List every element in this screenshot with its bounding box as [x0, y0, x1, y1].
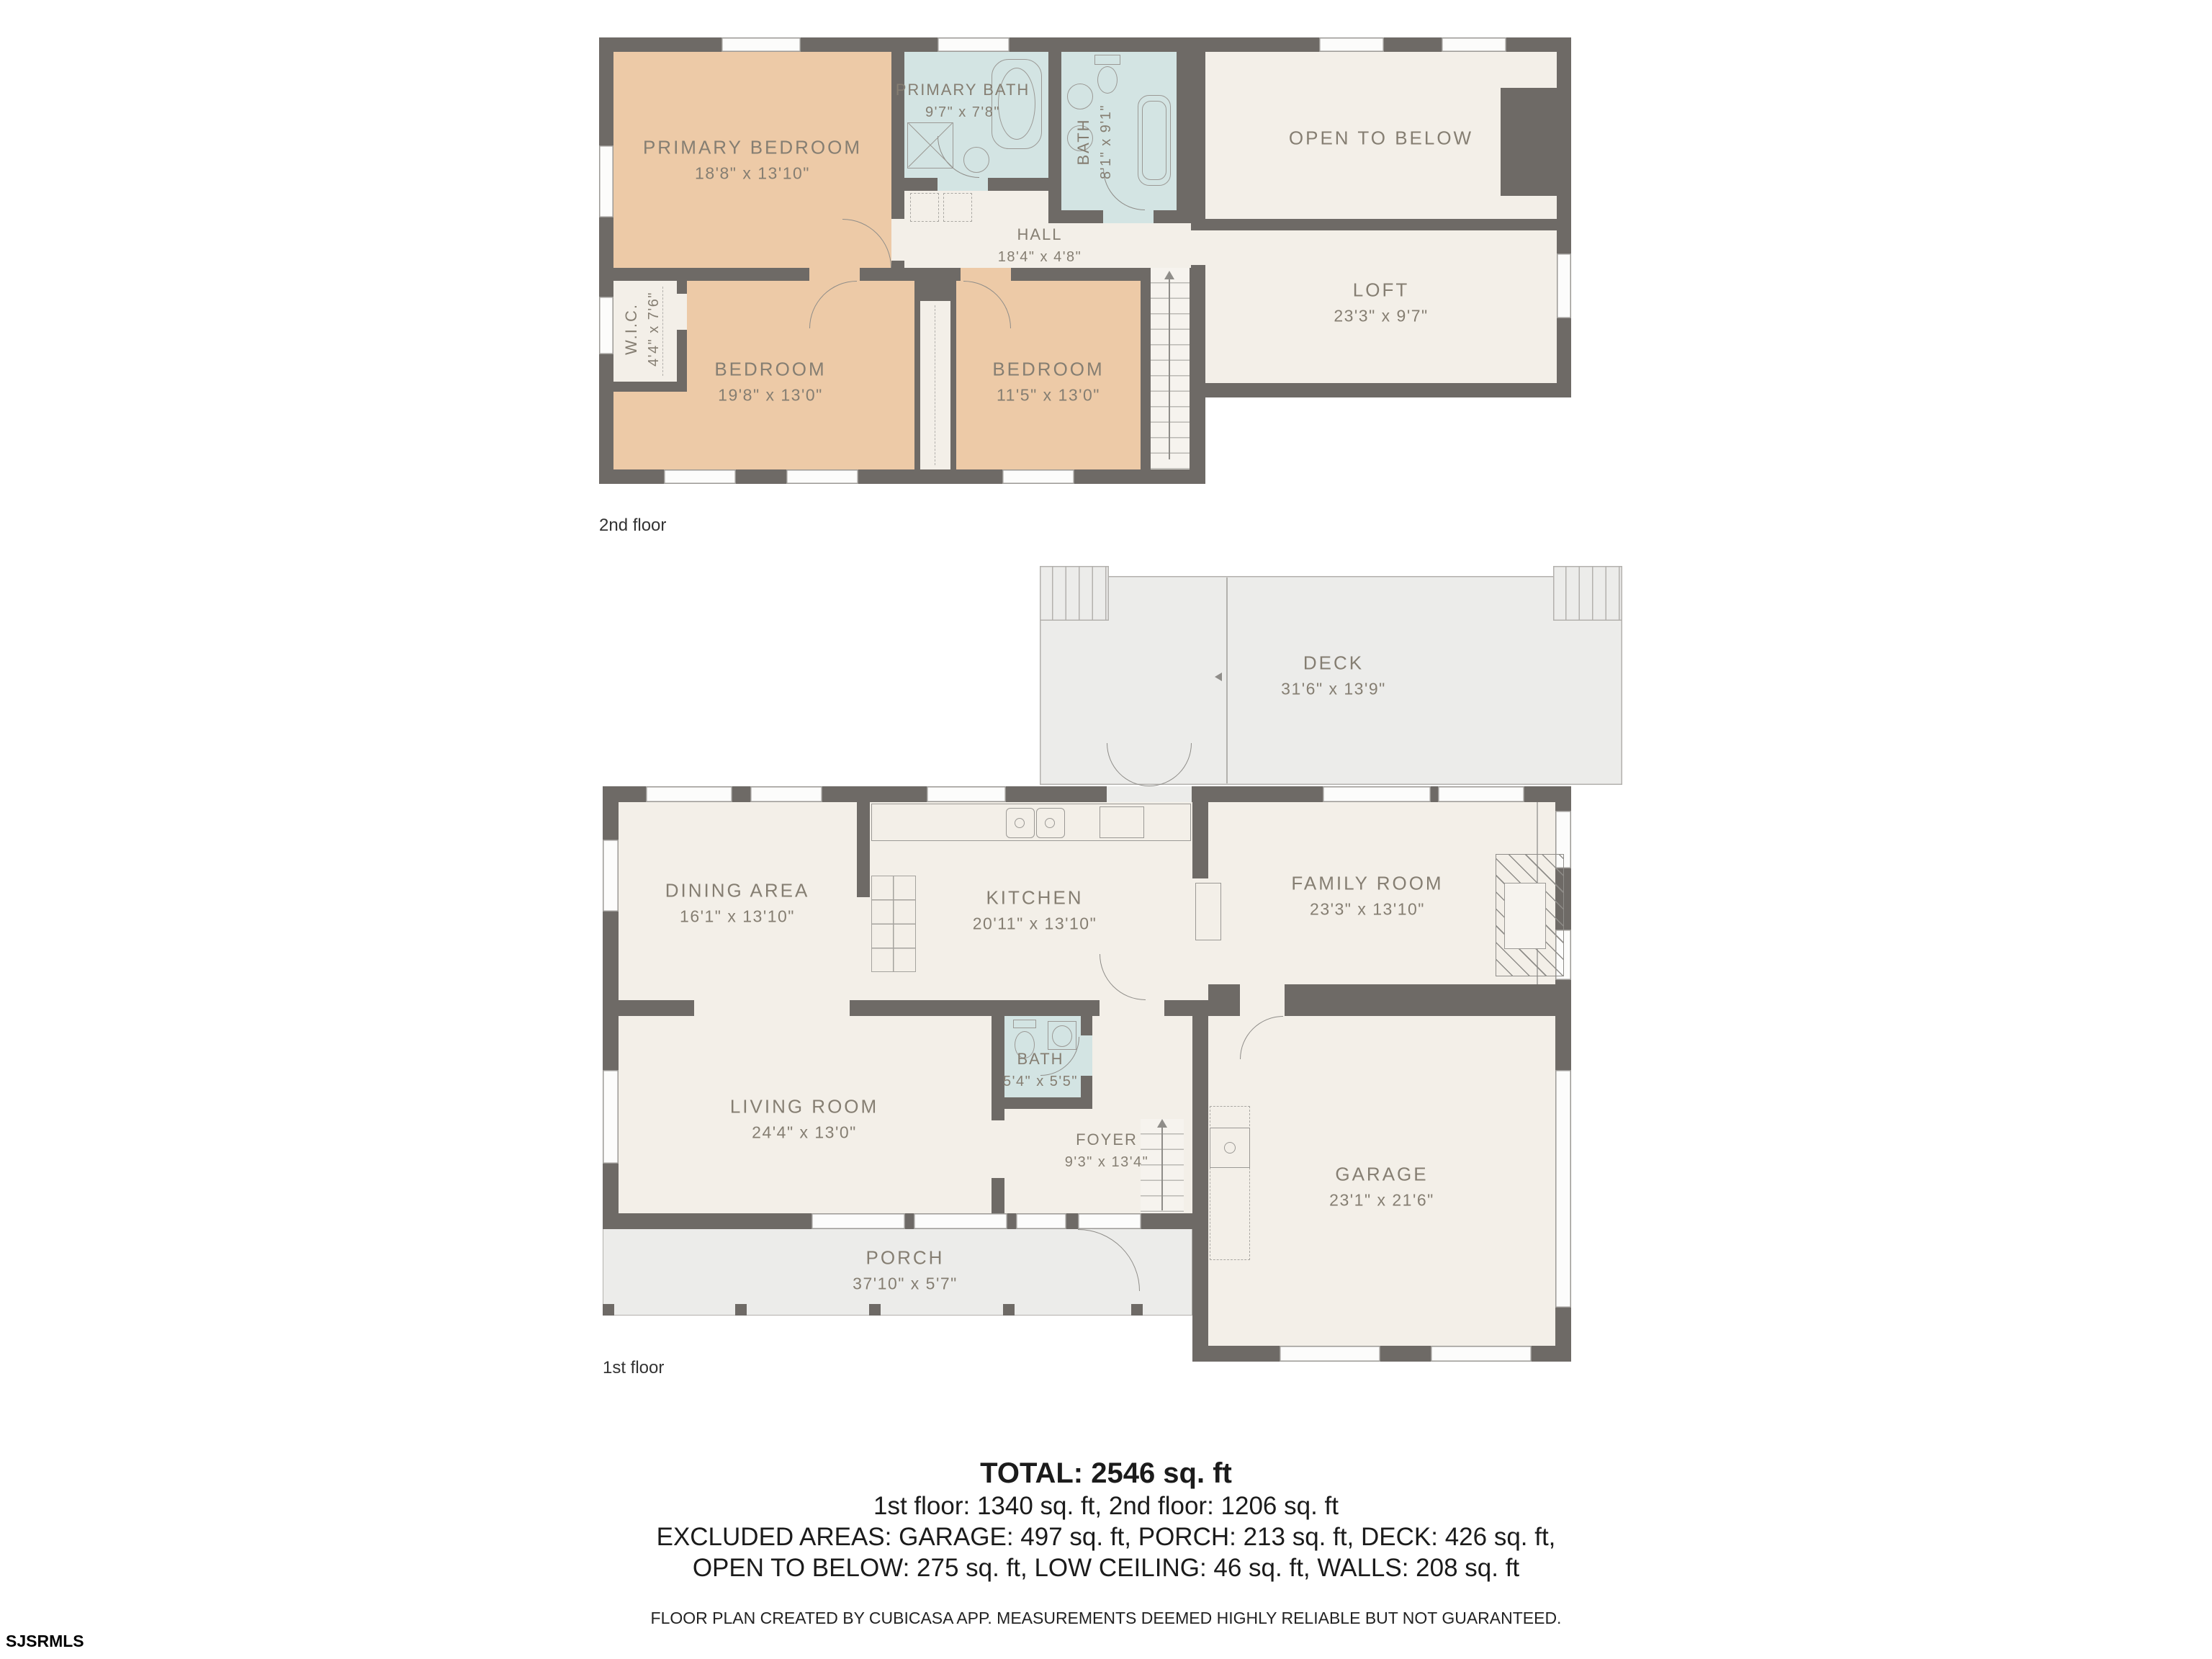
- closet-divider-line: [935, 305, 935, 465]
- stairs-up-arrow: [1164, 271, 1174, 279]
- stove: [1100, 806, 1144, 838]
- room-label-wic: W.I.C. 4'4" x 7'6": [622, 292, 662, 367]
- wall-opening: [992, 1120, 1004, 1178]
- window: [646, 786, 732, 802]
- excluded-areas-1: EXCLUDED AREAS: GARAGE: 497 sq. ft, PORC…: [0, 1521, 2212, 1552]
- door-opening: [1100, 1000, 1164, 1016]
- window: [1016, 1213, 1066, 1229]
- wall: [613, 382, 687, 392]
- window: [1557, 253, 1571, 318]
- window: [721, 37, 801, 52]
- window: [1002, 469, 1074, 484]
- room-label-loft: LOFT 23'3" x 9'7": [1334, 279, 1428, 326]
- door-opening: [1078, 1213, 1141, 1229]
- closet: [920, 301, 950, 469]
- second-floor-plan: PRIMARY BEDROOM 18'8" x 13'10" PRIMARY B…: [599, 37, 1571, 484]
- toilet-tank: [1013, 1020, 1036, 1028]
- room-foyer: [1092, 1016, 1192, 1109]
- porch-post: [1131, 1304, 1143, 1316]
- cabinet: [1195, 883, 1221, 940]
- garage-door-window: [1280, 1346, 1380, 1362]
- door-opening: [677, 294, 687, 330]
- room-label-bedroom-2: BEDROOM 11'5" x 13'0": [992, 359, 1104, 405]
- disclaimer: FLOOR PLAN CREATED BY CUBICASA APP. MEAS…: [0, 1609, 2212, 1628]
- stairs-up-arrow: [1157, 1119, 1167, 1128]
- room-label-bedroom-1: BEDROOM 19'8" x 13'0": [714, 359, 826, 405]
- door-opening: [1240, 984, 1285, 1016]
- washer: [910, 193, 939, 222]
- stairs-arrow-line: [1169, 279, 1170, 459]
- window: [1319, 37, 1384, 52]
- window: [599, 145, 613, 217]
- room-label-family-room: FAMILY ROOM 23'3" x 13'10": [1291, 873, 1443, 920]
- chimney: [1501, 88, 1557, 196]
- cabinet: [871, 876, 916, 972]
- wic-shelf-line: [662, 287, 663, 376]
- porch-post: [869, 1304, 881, 1316]
- mls-watermark: SJSRMLS: [6, 1632, 84, 1651]
- window: [1323, 786, 1431, 802]
- total-area: TOTAL: 2546 sq. ft: [0, 1456, 2212, 1491]
- door-opening: [891, 219, 904, 261]
- room-label-foyer: FOYER 9'3" x 13'4": [1065, 1130, 1149, 1171]
- door-opening: [1103, 210, 1154, 223]
- floor-areas: 1st floor: 1340 sq. ft, 2nd floor: 1206 …: [0, 1491, 2212, 1521]
- wall-opening: [857, 897, 870, 1000]
- door-opening: [938, 178, 988, 191]
- dryer: [943, 193, 972, 222]
- drain: [1045, 818, 1055, 828]
- window: [1438, 786, 1524, 802]
- room-label-dining-area: DINING AREA 16'1" x 13'10": [665, 880, 810, 927]
- window: [603, 1070, 619, 1164]
- deck-steps: [1040, 566, 1109, 621]
- room-label-porch: PORCH 37'10" x 5'7": [853, 1247, 958, 1294]
- window: [599, 297, 613, 354]
- deck-seam-line: [1226, 577, 1228, 783]
- sink: [963, 147, 989, 173]
- stairs-arrow-line: [1161, 1128, 1163, 1210]
- door-opening: [809, 268, 860, 281]
- water-heater-valve: [1224, 1142, 1236, 1154]
- room-label-bath: BATH 8'1" x 9'1": [1074, 104, 1115, 179]
- room-label-primary-bedroom: PRIMARY BEDROOM 18'8" x 13'10": [643, 137, 862, 184]
- deck-steps: [1553, 566, 1622, 621]
- room-label-primary-bath: PRIMARY BATH 9'7" x 7'8": [896, 81, 1030, 121]
- room-label-living-room: LIVING ROOM 24'4" x 13'0": [730, 1096, 878, 1143]
- room-label-deck: DECK 31'6" x 13'9": [1281, 652, 1386, 699]
- window: [786, 469, 858, 484]
- door-opening: [1081, 1035, 1092, 1076]
- window: [927, 786, 1006, 802]
- deck-arrow: [1215, 673, 1222, 681]
- window: [1555, 1070, 1571, 1308]
- porch-post: [1003, 1304, 1015, 1316]
- wall-opening: [694, 1000, 850, 1016]
- window: [938, 37, 1010, 52]
- first-floor-plan: DECK 31'6" x 13'9" DINING AREA 16'1" x 1…: [603, 566, 1622, 1365]
- room-label-garage: GARAGE 23'1" x 21'6": [1329, 1164, 1434, 1210]
- room-label-open-to-below: OPEN TO BELOW: [1289, 127, 1473, 150]
- room-label-kitchen: KITCHEN 20'11" x 13'10": [973, 887, 1097, 934]
- area-summary: TOTAL: 2546 sq. ft 1st floor: 1340 sq. f…: [0, 1456, 2212, 1583]
- sink: [1052, 1025, 1072, 1047]
- window: [811, 1213, 905, 1229]
- window: [1442, 37, 1506, 52]
- porch-post: [603, 1304, 614, 1316]
- window: [914, 1213, 1007, 1229]
- hall-opening: [1190, 230, 1207, 265]
- window: [603, 840, 619, 912]
- drain: [1015, 818, 1025, 828]
- room-label-hall: HALL 18'4" x 4'8": [998, 225, 1082, 266]
- window: [664, 469, 736, 484]
- door-opening: [1107, 786, 1192, 802]
- first-floor-caption: 1st floor: [603, 1358, 664, 1378]
- bathtub-basin: [1142, 101, 1166, 180]
- excluded-areas-2: OPEN TO BELOW: 275 sq. ft, LOW CEILING: …: [0, 1552, 2212, 1583]
- room-label-bath: BATH 5'4" x 5'5": [1003, 1050, 1078, 1090]
- toilet-tank: [1094, 55, 1120, 65]
- toilet: [1097, 66, 1118, 94]
- window: [750, 786, 822, 802]
- door-opening: [961, 268, 1011, 281]
- second-floor-caption: 2nd floor: [599, 516, 666, 536]
- garage-door-window: [1431, 1346, 1532, 1362]
- fireplace-firebox: [1504, 883, 1546, 949]
- stairs: [1151, 268, 1190, 469]
- floor-plan-page: PRIMARY BEDROOM 18'8" x 13'10" PRIMARY B…: [0, 0, 2212, 1659]
- porch-post: [735, 1304, 747, 1316]
